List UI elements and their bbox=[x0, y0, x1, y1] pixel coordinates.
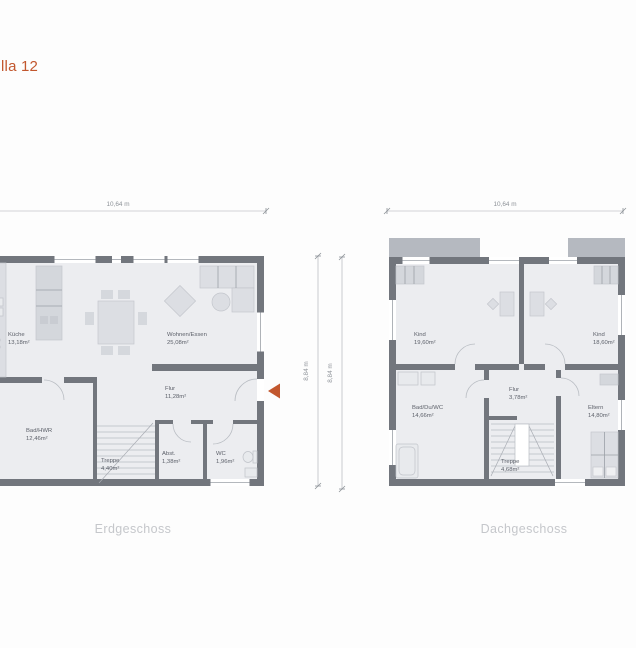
room-label-bad-du-wc: Bad/Du/WC bbox=[412, 405, 444, 411]
room-label-wc: WC bbox=[216, 451, 227, 457]
room-area-kind-left: 19,60m² bbox=[414, 340, 436, 346]
room-label-kind-right: Kind bbox=[593, 332, 605, 338]
caption-erdgeschoss: Erdgeschoss bbox=[23, 522, 243, 536]
room-area-wohnen: 25,08m² bbox=[167, 340, 189, 346]
room-area-treppe-eg: 4,40m² bbox=[101, 466, 119, 472]
eg-width-dim-label: 10,64 m bbox=[106, 201, 129, 208]
room-label-abst: Abst. bbox=[162, 451, 176, 457]
entrance-arrow-icon bbox=[268, 384, 280, 399]
dachgeschoss-plan: Kind 19,60m² Kind 18,60m² Bad/Du/WC 14,6… bbox=[389, 238, 625, 486]
room-area-wc: 1,96m² bbox=[216, 459, 234, 465]
room-area-treppe-dg: 4,68m² bbox=[501, 467, 519, 473]
room-area-kind-right: 18,60m² bbox=[593, 340, 615, 346]
room-label-treppe-eg: Treppe bbox=[101, 458, 120, 464]
dg-roof-block-left bbox=[389, 238, 480, 257]
room-area-eltern: 14,80m² bbox=[588, 413, 610, 419]
dg-height-dim-label: 8,84 m bbox=[327, 363, 334, 383]
room-area-bad-hwr: 12,46m² bbox=[26, 436, 48, 442]
room-area-flur-dg: 3,78m² bbox=[509, 395, 527, 401]
eg-width-dimension: 10,64 m bbox=[0, 201, 269, 214]
room-label-bad-hwr: Bad/HWR bbox=[26, 428, 52, 434]
dg-width-dimension: 10,64 m bbox=[384, 201, 626, 214]
room-label-wohnen: Wohnen/Essen bbox=[167, 332, 207, 338]
room-label-kueche: Küche bbox=[8, 332, 25, 338]
dg-floor bbox=[389, 257, 625, 486]
dg-height-dimension: 8,84 m bbox=[327, 254, 345, 492]
room-label-eltern: Eltern bbox=[588, 405, 603, 411]
room-label-flur-eg: Flur bbox=[165, 386, 175, 392]
dg-roof-block-right bbox=[568, 238, 625, 257]
caption-dachgeschoss: Dachgeschoss bbox=[414, 522, 634, 536]
room-area-bad-du-wc: 14,66m² bbox=[412, 413, 434, 419]
room-area-kueche: 13,18m² bbox=[8, 340, 30, 346]
room-area-flur-eg: 11,28m² bbox=[165, 394, 186, 400]
room-area-abst: 1,38m² bbox=[162, 459, 180, 465]
eg-height-dimension: 8,84 m bbox=[303, 253, 321, 489]
room-label-flur-dg: Flur bbox=[509, 387, 519, 393]
room-label-treppe-dg: Treppe bbox=[501, 459, 520, 465]
eg-height-dim-label: 8,84 m bbox=[303, 361, 310, 381]
floorplan-canvas: Küche 13,18m² Wohnen/Essen 25,08m² Flur … bbox=[0, 0, 636, 648]
room-label-kind-left: Kind bbox=[414, 332, 426, 338]
erdgeschoss-plan: Küche 13,18m² Wohnen/Essen 25,08m² Flur … bbox=[0, 256, 264, 486]
dg-width-dim-label: 10,64 m bbox=[493, 201, 516, 208]
